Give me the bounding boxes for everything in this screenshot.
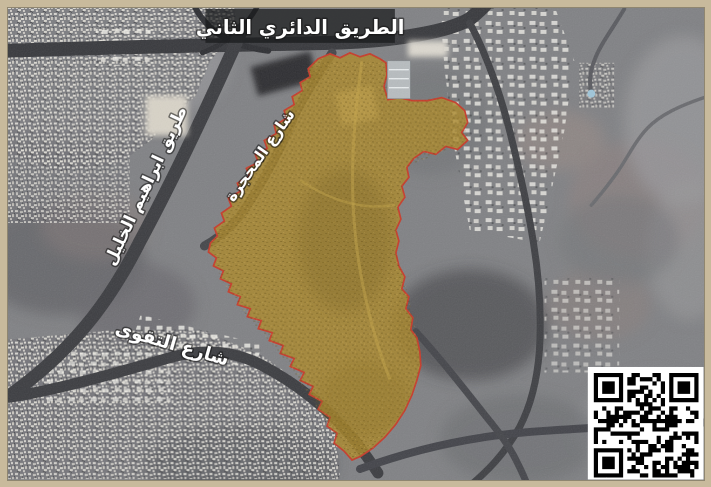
map-frame: الطريق الدائري الثاني طريق ابراهيم الخلي…	[0, 0, 711, 487]
satellite-map: الطريق الدائري الثاني طريق ابراهيم الخلي…	[7, 7, 705, 481]
satellite-map-image: الطريق الدائري الثاني طريق ابراهيم الخلي…	[8, 8, 704, 480]
ring-road-label: الطريق الدائري الثاني	[196, 16, 405, 40]
qr-code	[588, 367, 704, 480]
